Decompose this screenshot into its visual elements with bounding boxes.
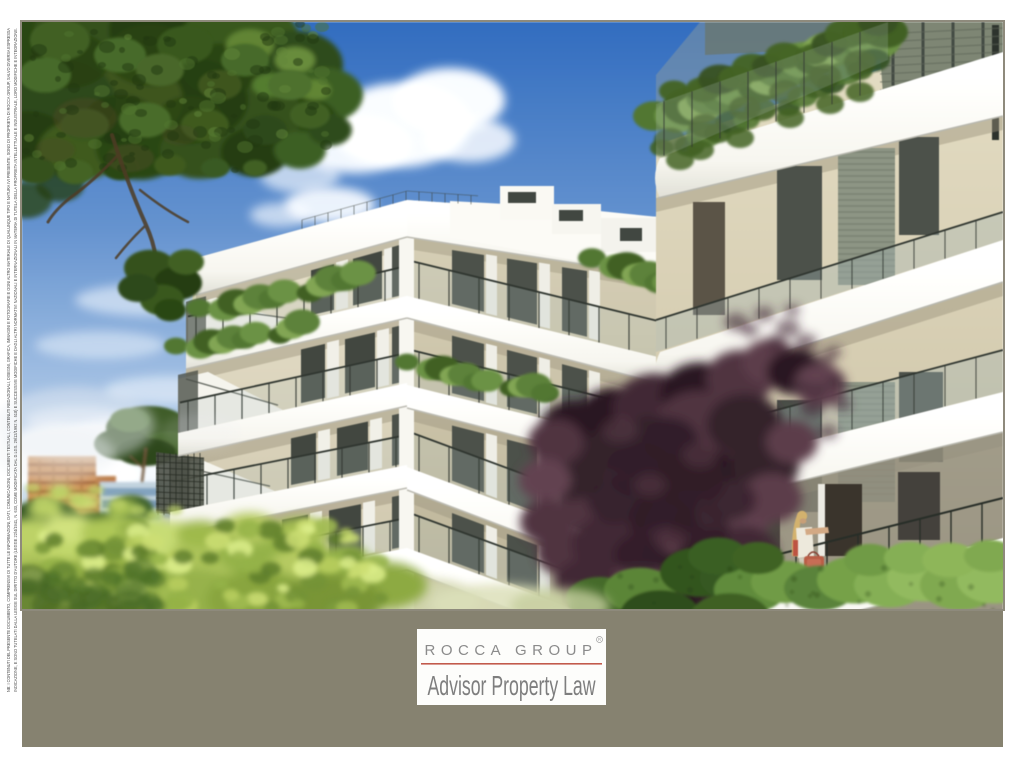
svg-text:NB: I CONTENUTI DEL PRESENTE D: NB: I CONTENUTI DEL PRESENTE DOCUMENTO, …: [6, 27, 12, 692]
svg-text:Advisor Property Law: Advisor Property Law: [428, 670, 596, 701]
svg-text:INDICAZIONE, E SONO TUTELATI D: INDICAZIONE, E SONO TUTELATI DALLA LEGGE…: [13, 28, 19, 692]
svg-text:ROCCA GROUP: ROCCA GROUP: [424, 642, 597, 659]
svg-text:R: R: [598, 637, 601, 642]
